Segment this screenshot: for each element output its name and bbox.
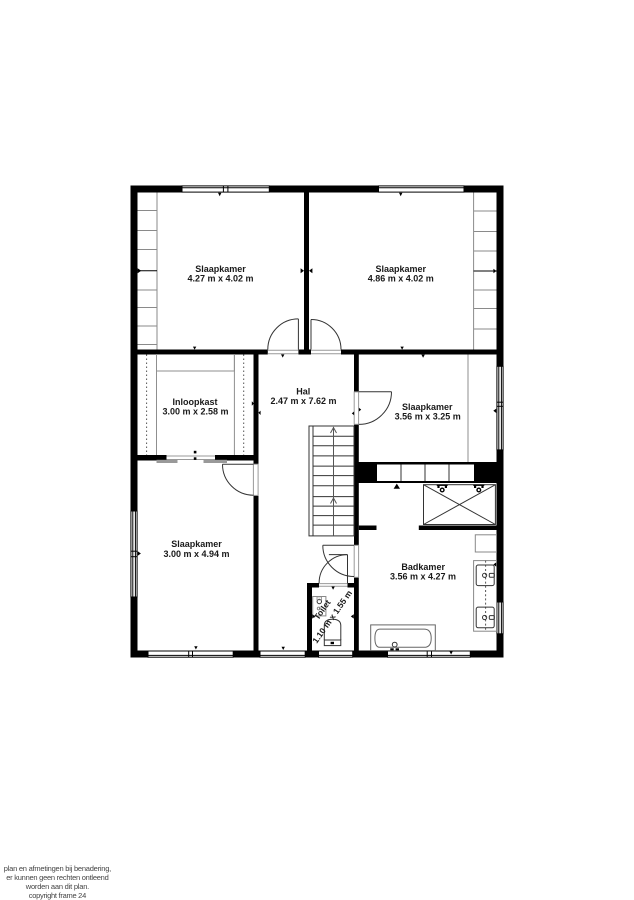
svg-text:Slaapkamer: Slaapkamer (195, 264, 246, 274)
svg-text:Slaapkamer: Slaapkamer (402, 402, 453, 412)
svg-text:Inloopkast: Inloopkast (172, 397, 217, 407)
svg-text:Hal: Hal (296, 387, 310, 397)
svg-text:copyright frame 24: copyright frame 24 (29, 891, 87, 900)
svg-text:4.86 m x 4.02 m: 4.86 m x 4.02 m (368, 274, 434, 284)
svg-text:er kunnen geen rechten ontleen: er kunnen geen rechten ontleend (6, 873, 109, 882)
svg-text:Slaapkamer: Slaapkamer (376, 264, 427, 274)
svg-text:worden aan dit plan.: worden aan dit plan. (25, 882, 90, 891)
svg-text:3.56 m x 3.25 m: 3.56 m x 3.25 m (395, 412, 461, 422)
svg-text:Badkamer: Badkamer (401, 562, 445, 572)
svg-text:4.27 m x 4.02 m: 4.27 m x 4.02 m (187, 274, 253, 284)
svg-text:plan en afmetingen bij benader: plan en afmetingen bij benadering, (4, 864, 112, 873)
svg-text:3.00 m x 2.58 m: 3.00 m x 2.58 m (162, 407, 228, 417)
svg-text:3.00 m x 4.94 m: 3.00 m x 4.94 m (163, 549, 229, 559)
svg-text:Slaapkamer: Slaapkamer (171, 539, 222, 549)
svg-text:3.56 m x 4.27 m: 3.56 m x 4.27 m (390, 571, 456, 581)
svg-text:2.47 m x 7.62 m: 2.47 m x 7.62 m (270, 396, 336, 406)
